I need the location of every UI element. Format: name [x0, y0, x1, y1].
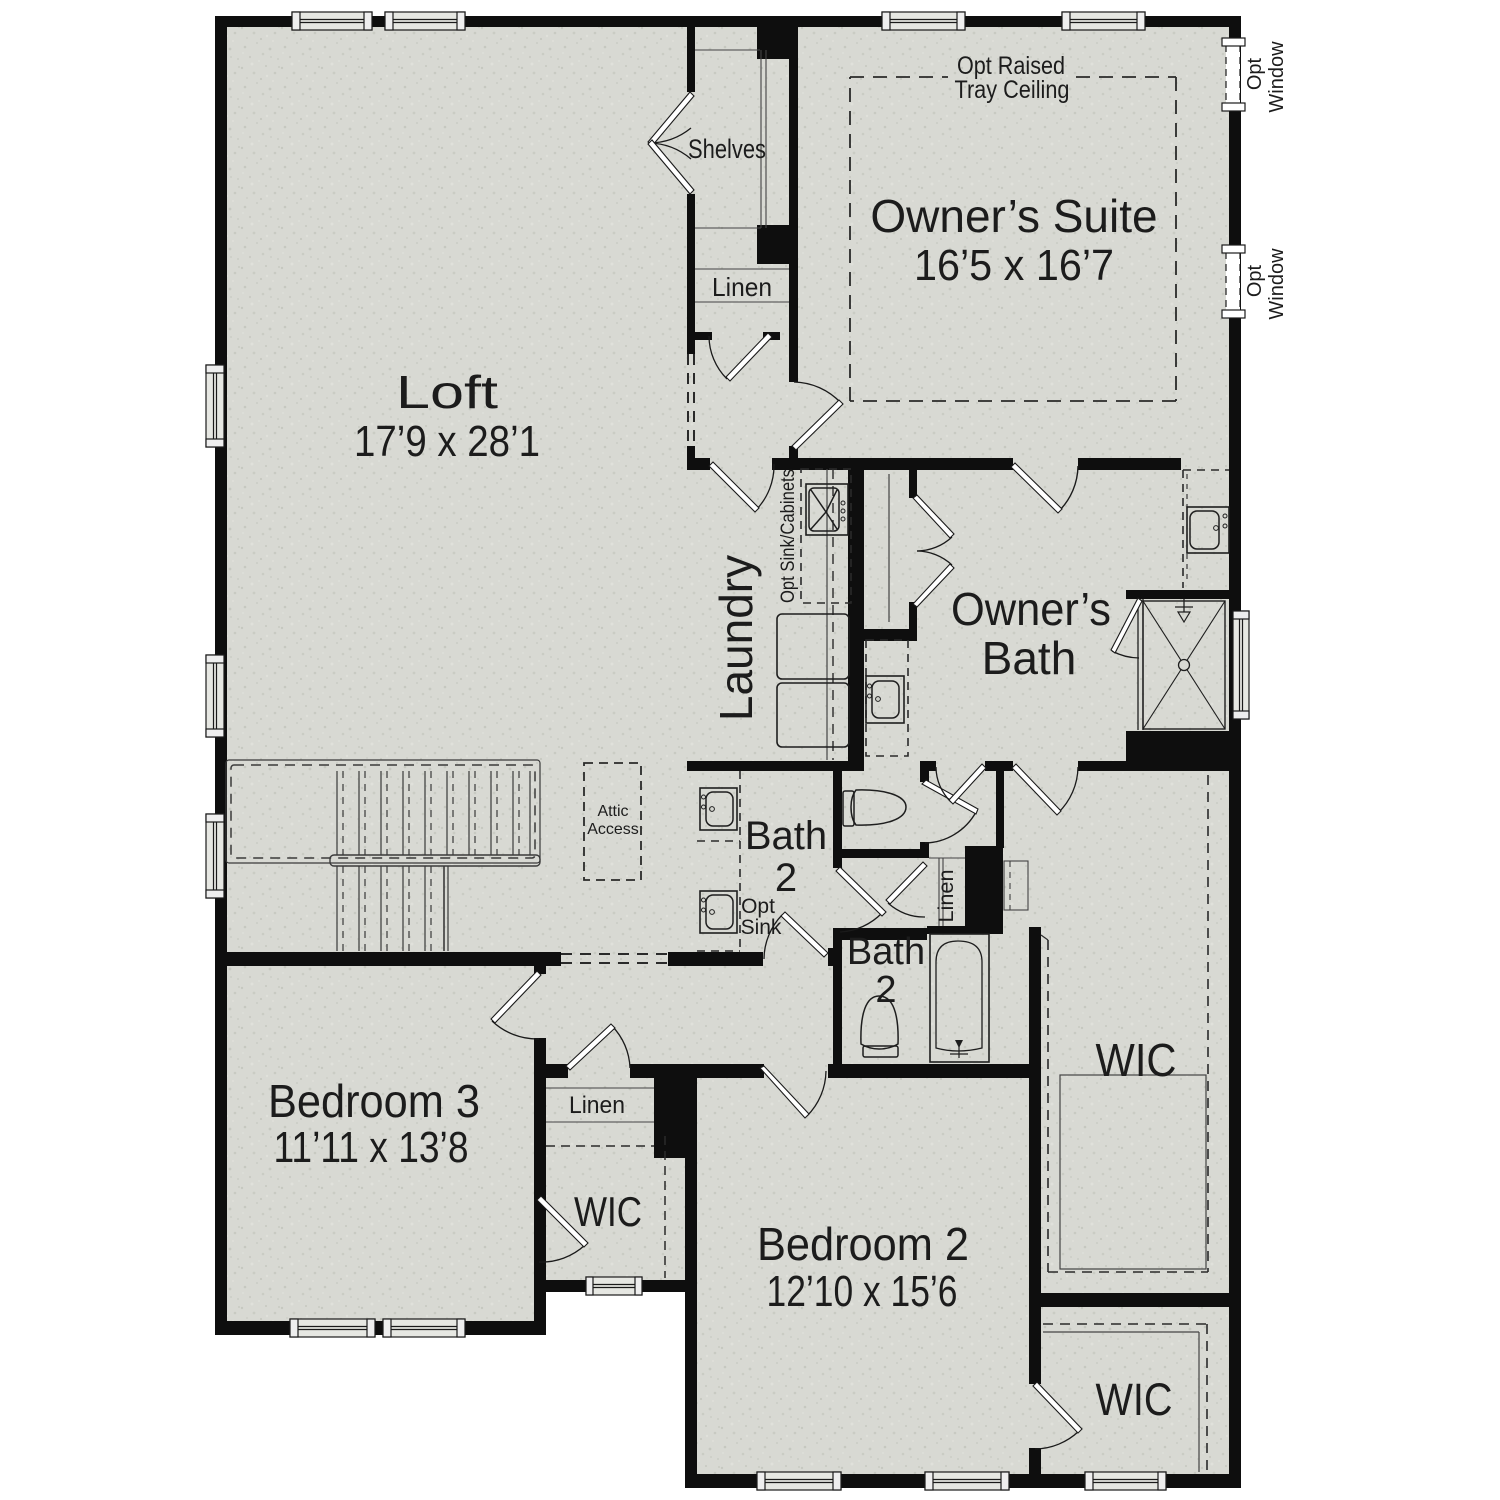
svg-text:Loft: Loft: [396, 366, 498, 418]
svg-text:WIC: WIC: [1096, 1034, 1177, 1086]
svg-text:12’10 x 15’6: 12’10 x 15’6: [767, 1267, 958, 1316]
svg-text:Bedroom 2: Bedroom 2: [757, 1218, 969, 1270]
svg-text:Attic: Attic: [597, 803, 628, 820]
svg-text:WIC: WIC: [574, 1188, 642, 1235]
svg-text:Shelves: Shelves: [688, 134, 766, 164]
svg-text:Linen: Linen: [712, 272, 772, 302]
svg-text:Bedroom 3: Bedroom 3: [268, 1075, 480, 1127]
svg-text:2: 2: [875, 969, 896, 1011]
svg-text:Bath: Bath: [982, 632, 1077, 684]
svg-text:2: 2: [775, 856, 797, 900]
svg-text:Tray Ceiling: Tray Ceiling: [955, 76, 1070, 104]
svg-text:Opt Sink/Cabinets: Opt Sink/Cabinets: [778, 469, 799, 603]
svg-text:Linen: Linen: [935, 870, 958, 923]
svg-text:Access: Access: [587, 821, 639, 838]
svg-text:Window: Window: [1266, 248, 1288, 320]
svg-text:Bath: Bath: [745, 814, 827, 858]
svg-text:WIC: WIC: [1096, 1374, 1173, 1425]
svg-text:11’11 x 13’8: 11’11 x 13’8: [274, 1123, 469, 1172]
svg-text:17’9 x 28’1: 17’9 x 28’1: [354, 417, 540, 466]
svg-text:Opt: Opt: [1244, 57, 1266, 90]
svg-text:Sink: Sink: [741, 916, 782, 939]
svg-text:16’5 x 16’7: 16’5 x 16’7: [914, 241, 1114, 290]
svg-text:Window: Window: [1266, 41, 1288, 113]
svg-text:Linen: Linen: [569, 1092, 625, 1119]
svg-text:Laundry: Laundry: [710, 555, 762, 721]
svg-text:Owner’s: Owner’s: [951, 583, 1111, 635]
svg-text:Opt: Opt: [1244, 264, 1266, 297]
svg-text:Opt: Opt: [741, 895, 775, 918]
svg-text:Bath: Bath: [847, 931, 925, 973]
svg-text:Owner’s Suite: Owner’s Suite: [870, 190, 1157, 242]
